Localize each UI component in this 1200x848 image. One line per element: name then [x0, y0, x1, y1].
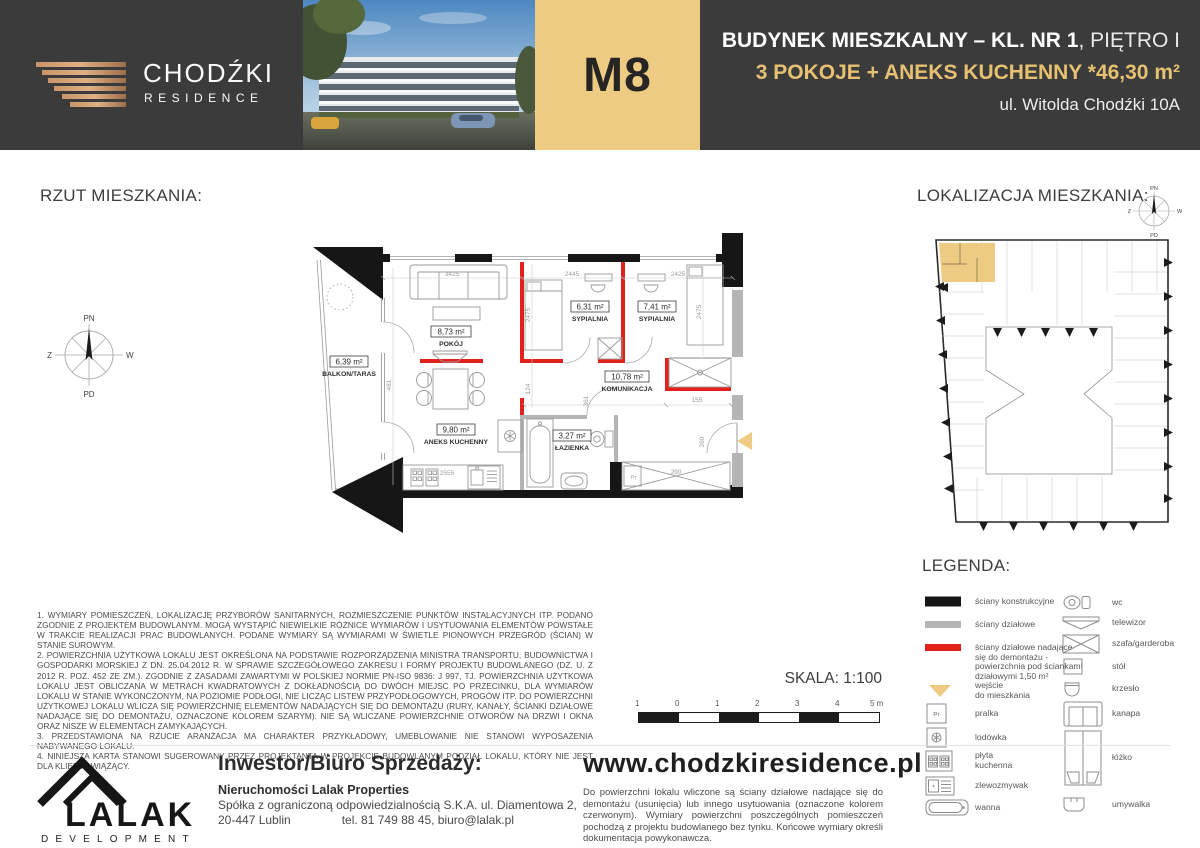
compass-rose: PN W PD Z	[44, 310, 134, 400]
chair-icon	[1062, 680, 1112, 698]
entrance-arrow-icon	[737, 432, 752, 450]
legend-item-tv: telewizor	[1062, 615, 1146, 630]
bed-icon	[1062, 730, 1112, 786]
apartment-floor-plan: 3425 2445 2425 2475 2475 481 2555 124 36…	[300, 190, 780, 550]
svg-text:8,73 m²: 8,73 m²	[437, 328, 464, 337]
svg-text:2425: 2425	[671, 271, 686, 278]
legend-item-wc: wc	[1062, 594, 1123, 611]
compass-needle	[1152, 194, 1156, 214]
developer-logo: LALAK DEVELOPMENT	[35, 750, 210, 845]
room-label-sypialnia-2: 7,41 m² SYPIALNIA	[638, 301, 676, 323]
legend-item-table: stół	[1062, 658, 1125, 675]
floor-plan-title: RZUT MIESZKANIA:	[40, 186, 202, 206]
svg-text:6,39 m²: 6,39 m²	[335, 358, 362, 367]
compass-east-label: W	[126, 351, 134, 360]
legend-item-entrance: wejście do mieszkania	[925, 681, 1030, 700]
table-icon	[1062, 658, 1112, 675]
building-photo	[303, 0, 535, 150]
developer-logo-sub: DEVELOPMENT	[41, 834, 196, 845]
scale-tick: 1	[635, 699, 639, 708]
legend-item-sofa: kanapa	[1062, 700, 1140, 728]
apartment-card-page: CHODŹKI RESIDENCE	[0, 0, 1200, 848]
svg-text:3,27 m²: 3,27 m²	[558, 432, 585, 441]
scale-tick: 4	[835, 699, 839, 708]
location-compass-rose: PN W PD Z	[1126, 183, 1182, 239]
wc-icon	[1062, 594, 1112, 611]
svg-text:ŁAZIENKA: ŁAZIENKA	[555, 445, 589, 452]
hob-icon	[925, 750, 975, 772]
sofa-icon	[1062, 700, 1112, 728]
svg-text:PN: PN	[1150, 186, 1158, 192]
note-3: 3. PRZEDSTAWIONA NA RZUCIE ARANŻACJA MA …	[37, 731, 593, 751]
wardrobe-icon	[1062, 634, 1112, 654]
legend-item-partition-walls: ściany działowe	[925, 620, 1035, 630]
svg-text:2475: 2475	[696, 304, 703, 319]
footer-divider	[30, 745, 1170, 746]
demountable-wall-swatch	[925, 643, 975, 652]
scale-bar	[638, 712, 880, 723]
svg-text:481: 481	[386, 379, 393, 390]
website-url[interactable]: www.chodzkiresidence.pl	[583, 748, 922, 779]
legend-item-structural-walls: ściany konstrukcyjne	[925, 596, 1054, 607]
scale-tick: 5 m	[870, 699, 883, 708]
developer-logo-name: LALAK	[65, 796, 195, 834]
investor-title: Inwestor/Biuro Sprzedaży:	[218, 752, 482, 776]
legend-title: LEGENDA:	[922, 556, 1010, 576]
room-label-sypialnia-1: 6,31 m² SYPIALNIA	[571, 301, 609, 323]
svg-text:124: 124	[525, 383, 532, 394]
legend-item-wardrobe: szafa/garderoba	[1062, 634, 1174, 654]
room-label-balkon: 6,39 m² BALKON/TARAS	[322, 356, 376, 378]
demountable-walls	[420, 262, 731, 415]
svg-text:7,41 m²: 7,41 m²	[643, 303, 670, 312]
svg-text:290: 290	[671, 469, 682, 476]
tv-icon	[1062, 615, 1112, 630]
svg-text:Pr: Pr	[933, 712, 940, 719]
svg-text:10,78 m²: 10,78 m²	[611, 373, 643, 382]
sink-icon	[925, 776, 975, 796]
legend-item-washbasin: umywalka	[1062, 796, 1150, 814]
window	[390, 254, 716, 262]
unit-code: M8	[583, 48, 652, 103]
svg-text:2475: 2475	[525, 307, 532, 322]
investor-phone-email: tel. 81 749 88 45, biuro@lalak.pl	[342, 813, 514, 827]
legend-item-hob: płyta kuchenna	[925, 750, 1012, 772]
legend-item-bathtub: wanna	[925, 799, 1000, 817]
svg-text:KOMUNIKACJA: KOMUNIKACJA	[602, 386, 653, 393]
tree-icon	[327, 284, 353, 310]
scale-tick: 0	[675, 699, 679, 708]
brand-subtitle: RESIDENCE	[144, 91, 264, 105]
bathtub-icon	[925, 799, 975, 817]
washbasin-icon	[1062, 796, 1112, 814]
svg-text:SYPIALNIA: SYPIALNIA	[572, 316, 608, 323]
header: CHODŹKI RESIDENCE	[0, 0, 1200, 150]
apartment-summary: 3 POKOJE + ANEKS KUCHENNY *46,30 m²	[700, 57, 1180, 89]
building-title: BUDYNEK MIESZKALNY – KL. NR 1, PIĘTRO I	[700, 25, 1180, 57]
compass-needle	[86, 328, 93, 360]
svg-text:2555: 2555	[440, 470, 455, 477]
footer-disclaimer: Do powierzchni lokalu wliczone są ściany…	[583, 787, 883, 845]
room-label-aneks: 9,80 m² ANEKS KUCHENNY	[424, 424, 489, 446]
scale-tick: 3	[795, 699, 799, 708]
scale-tick: 2	[755, 699, 759, 708]
structural-wall-swatch	[925, 596, 975, 607]
svg-text:SYPIALNIA: SYPIALNIA	[639, 316, 675, 323]
svg-text:9,80 m²: 9,80 m²	[442, 426, 469, 435]
investor-company: Nieruchomości Lalak Properties	[218, 783, 409, 797]
building-location-plan	[922, 232, 1200, 532]
brand-logo-icon	[30, 60, 130, 120]
brand-name: CHODŹKI	[143, 58, 274, 89]
unit-badge: M8	[535, 0, 700, 150]
svg-text:361: 361	[583, 395, 590, 406]
investor-contact-row: 20-447 Lublin tel. 81 749 88 45, biuro@l…	[218, 813, 514, 827]
scale-tick: 1	[715, 699, 719, 708]
room-label-lazienka: 3,27 m² ŁAZIENKA	[553, 430, 591, 452]
note-1: 1. WYMIARY POMIESZCZEŃ, LOKALIZACJĘ PRZY…	[37, 610, 593, 650]
entrance-arrow-icon	[925, 683, 975, 698]
header-info: BUDYNEK MIESZKALNY – KL. NR 1, PIĘTRO I …	[700, 0, 1200, 150]
room-label-komunikacja: 10,78 m² KOMUNIKACJA	[602, 371, 653, 393]
legend-item-demountable-walls: ściany działowe nadające się do demontaż…	[925, 643, 1082, 681]
partition-wall-swatch	[925, 620, 975, 629]
legal-notes: 1. WYMIARY POMIESZCZEŃ, LOKALIZACJĘ PRZY…	[37, 610, 593, 772]
furniture	[403, 265, 731, 490]
svg-text:W: W	[1177, 209, 1182, 215]
washer-mark: Pr	[631, 475, 637, 481]
compass-north-label: PN	[83, 314, 94, 323]
brand-logo: CHODŹKI RESIDENCE	[0, 0, 303, 150]
svg-text:3425: 3425	[445, 271, 460, 278]
investor-address: Spółka z ograniczoną odpowiedzialnością …	[218, 798, 577, 812]
svg-text:2445: 2445	[565, 271, 580, 278]
legend-item-washer: Pr pralka	[925, 703, 998, 724]
svg-text:6,31 m²: 6,31 m²	[576, 303, 603, 312]
note-2: 2. POWIERZCHNIA UŻYTKOWA LOKALU JEST OKR…	[37, 650, 593, 731]
legend-item-sink: zlewozmywak	[925, 776, 1028, 796]
compass-south-label: PD	[83, 390, 94, 399]
svg-text:ANEKS KUCHENNY: ANEKS KUCHENNY	[424, 439, 489, 446]
svg-text:155: 155	[692, 397, 703, 404]
compass-west-label: Z	[47, 351, 52, 360]
room-label-pokoj: 8,73 m² POKÓJ	[431, 326, 471, 348]
scale-label: SKALA: 1:100	[760, 670, 882, 688]
washer-icon: Pr	[925, 703, 975, 724]
investor-city: 20-447 Lublin	[218, 813, 291, 827]
location-title: LOKALIZACJA MIESZKANIA:	[917, 186, 1149, 206]
highlighted-apartment	[939, 243, 995, 282]
svg-text:POKÓJ: POKÓJ	[439, 339, 463, 348]
svg-text:260: 260	[699, 436, 706, 447]
svg-text:BALKON/TARAS: BALKON/TARAS	[322, 371, 376, 378]
svg-text:Z: Z	[1128, 209, 1132, 215]
legend-item-chair: krzesło	[1062, 680, 1139, 698]
street-address: ul. Witolda Chodźki 10A	[700, 89, 1180, 121]
legend-item-bed: łóżko	[1062, 730, 1132, 786]
